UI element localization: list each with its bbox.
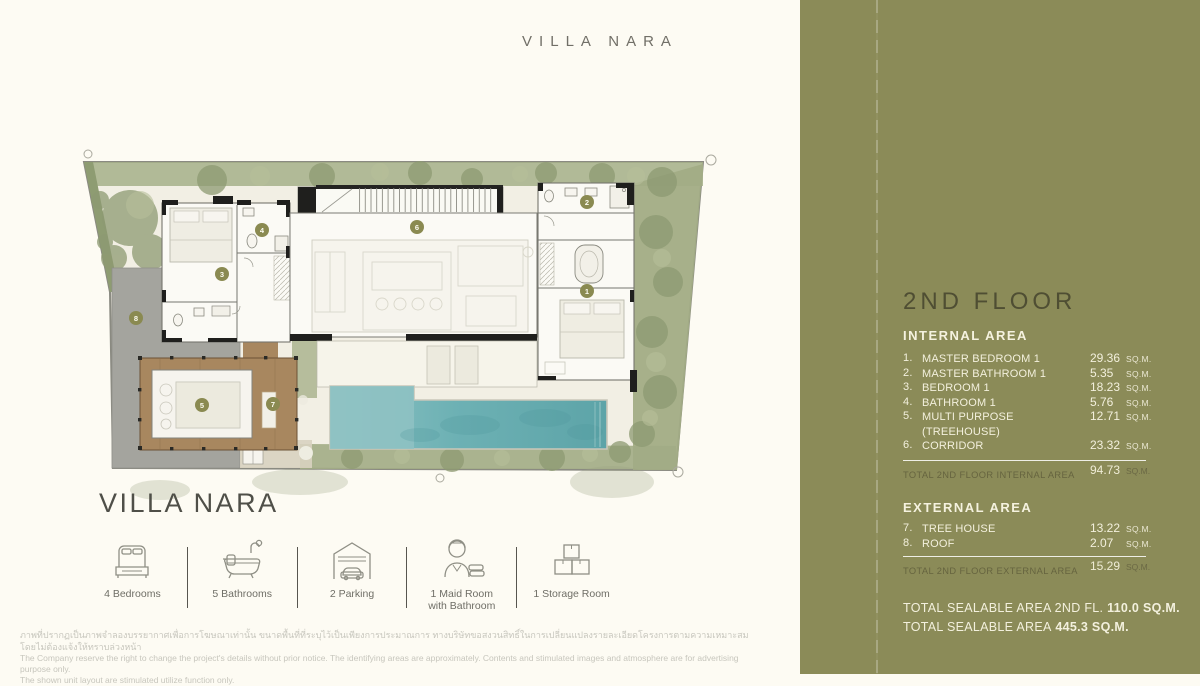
sealable-2nd-floor: TOTAL SEALABLE AREA 2ND FL. 110.0 SQ.M. bbox=[903, 601, 1183, 615]
toilet bbox=[545, 190, 554, 202]
svg-text:3: 3 bbox=[220, 270, 224, 279]
feature-bedrooms: 4 Bedrooms bbox=[78, 535, 187, 610]
svg-text:1: 1 bbox=[585, 287, 589, 296]
external-total-row: TOTAL 2ND FLOOR EXTERNAL AREA 15.29 SQ.M… bbox=[903, 561, 1153, 579]
svg-text:7: 7 bbox=[271, 400, 275, 409]
toilet bbox=[247, 234, 257, 248]
panel-edge-stripe bbox=[876, 0, 878, 674]
bathtub-icon bbox=[217, 537, 267, 581]
area-row: 5. MULTI PURPOSE(TREEHOUSE) 12.71SQ.M. bbox=[903, 410, 1153, 439]
page-title: VILLA NARA bbox=[522, 33, 678, 50]
area-row: 6.CORRIDOR23.32SQ.M. bbox=[903, 439, 1153, 454]
area-row: 2.MASTER BATHROOM 15.35SQ.M. bbox=[903, 367, 1153, 382]
badge-bathroom1: 4 bbox=[255, 223, 269, 237]
sealable-total: TOTAL SEALABLE AREA 445.3 SQ.M. bbox=[903, 620, 1183, 634]
stairs bbox=[356, 188, 493, 212]
external-area-heading: EXTERNAL AREA bbox=[903, 500, 1153, 515]
storage-boxes-icon bbox=[549, 537, 595, 581]
lounger bbox=[427, 346, 450, 384]
sink bbox=[243, 208, 254, 216]
svg-text:2: 2 bbox=[585, 198, 589, 207]
feature-label: 1 Maid Room with Bathroom bbox=[428, 589, 495, 612]
badge-multi-purpose: 5 bbox=[195, 398, 209, 412]
feature-summary-row: 4 Bedrooms 5 Bathrooms 2 Pa bbox=[78, 535, 626, 610]
badge-tree-house: 7 bbox=[266, 397, 280, 411]
shower bbox=[610, 186, 629, 208]
area-row: 1.MASTER BEDROOM 129.36SQ.M. bbox=[903, 352, 1153, 367]
area-row: 7.TREE HOUSE13.22SQ.M. bbox=[903, 522, 1153, 537]
feature-parking: 2 Parking bbox=[298, 535, 407, 610]
feature-storage: 1 Storage Room bbox=[517, 535, 626, 610]
svg-text:6: 6 bbox=[415, 223, 419, 232]
external-total-rule bbox=[903, 556, 1146, 557]
badge-corridor: 6 bbox=[410, 220, 424, 234]
internal-area-section: INTERNAL AREA 1.MASTER BEDROOM 129.36SQ.… bbox=[903, 328, 1153, 483]
maid-icon bbox=[437, 537, 487, 581]
disclaimer-thai: ภาพที่ปรากฏเป็นภาพจำลองบรรยากาศเพื่อการโ… bbox=[20, 629, 760, 653]
feature-label: 4 Bedrooms bbox=[104, 589, 161, 601]
feature-label: 2 Parking bbox=[330, 589, 374, 601]
internal-total-row: TOTAL 2ND FLOOR INTERNAL AREA 94.73 SQ.M… bbox=[903, 465, 1153, 483]
disclaimer: ภาพที่ปรากฏเป็นภาพจำลองบรรยากาศเพื่อการโ… bbox=[20, 629, 760, 686]
area-row: 3.BEDROOM 118.23SQ.M. bbox=[903, 381, 1153, 396]
disclaimer-english-2: The shown unit layout are stimulated uti… bbox=[20, 675, 760, 686]
badge-master-bedroom: 1 bbox=[580, 284, 594, 298]
svg-text:8: 8 bbox=[134, 314, 138, 323]
area-row: 8.ROOF2.07SQ.M. bbox=[903, 537, 1153, 552]
lounger bbox=[455, 346, 478, 384]
internal-total-rule bbox=[903, 460, 1146, 461]
sink bbox=[565, 188, 577, 196]
disclaimer-english-1: The Company reserve the right to change … bbox=[20, 653, 760, 675]
badge-roof: 8 bbox=[129, 311, 143, 325]
feature-label: 1 Storage Room bbox=[533, 589, 609, 601]
feature-label: 5 Bathrooms bbox=[212, 589, 272, 601]
internal-area-heading: INTERNAL AREA bbox=[903, 328, 1153, 343]
feature-maid-room: 1 Maid Room with Bathroom bbox=[407, 535, 516, 610]
floor-title: 2ND FLOOR bbox=[903, 288, 1076, 316]
sealable-area-summary: TOTAL SEALABLE AREA 2ND FL. 110.0 SQ.M. … bbox=[903, 601, 1183, 639]
villa-name-heading: VILLA NARA bbox=[99, 488, 279, 519]
svg-text:5: 5 bbox=[200, 401, 204, 410]
external-area-section: EXTERNAL AREA 7.TREE HOUSE13.22SQ.M. 8.R… bbox=[903, 500, 1153, 579]
area-row: 4.BATHROOM 15.76SQ.M. bbox=[903, 396, 1153, 411]
sink bbox=[585, 188, 597, 196]
feature-bathrooms: 5 Bathrooms bbox=[188, 535, 297, 610]
bed-icon bbox=[109, 537, 155, 581]
badge-master-bathroom: 2 bbox=[580, 195, 594, 209]
garage-icon bbox=[329, 537, 375, 581]
badge-bedroom1: 3 bbox=[215, 267, 229, 281]
corridor-block bbox=[290, 185, 537, 570]
